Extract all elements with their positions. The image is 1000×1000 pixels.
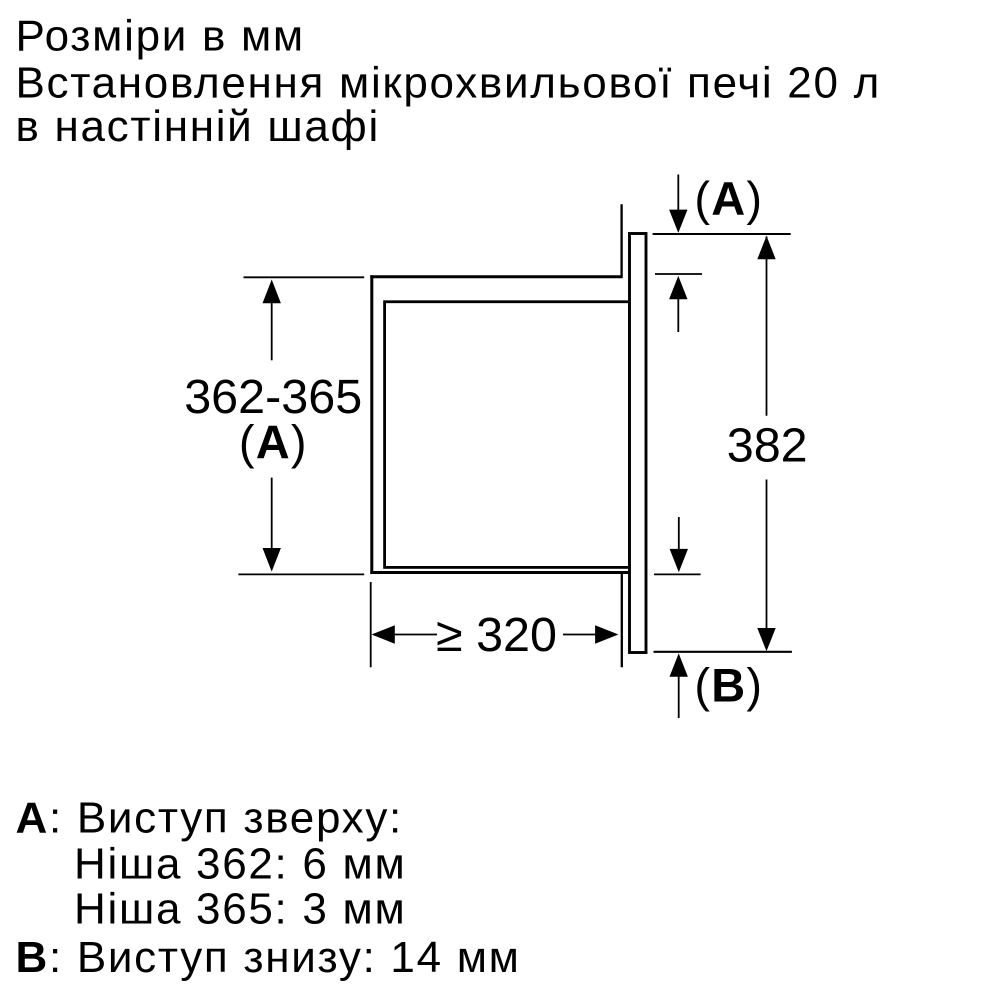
svg-text:Розміри в мм: Розміри в мм	[16, 11, 305, 60]
svg-text:Ніша 365: 3 мм: Ніша 365: 3 мм	[74, 884, 406, 933]
svg-text:Ніша 362: 6 мм: Ніша 362: 6 мм	[74, 839, 406, 888]
svg-text:(A): (A)	[694, 172, 763, 225]
svg-text:382: 382	[727, 418, 808, 472]
svg-text:≥ 320: ≥ 320	[436, 608, 557, 662]
svg-text:B: Виступ знизу: 14 мм: B: Виступ знизу: 14 мм	[16, 933, 521, 982]
svg-text:(B): (B)	[694, 659, 763, 712]
svg-text:(A): (A)	[239, 416, 308, 469]
svg-text:в настінній шафі: в настінній шафі	[16, 102, 380, 151]
svg-text:A: Виступ зверху:: A: Виступ зверху:	[16, 794, 403, 843]
svg-text:Встановлення мікрохвильової пе: Встановлення мікрохвильової печі 20 л	[16, 59, 881, 108]
